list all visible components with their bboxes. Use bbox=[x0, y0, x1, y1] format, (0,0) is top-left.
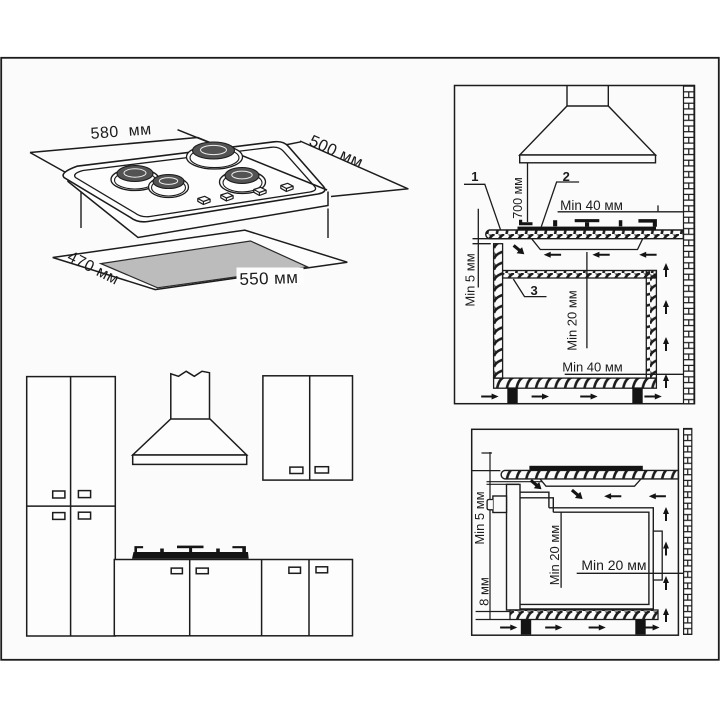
svg-text:1: 1 bbox=[471, 169, 478, 184]
svg-text:Min 40 мм: Min 40 мм bbox=[562, 359, 623, 374]
svg-text:Min 20 мм: Min 20 мм bbox=[565, 290, 580, 351]
svg-text:Min 20 мм: Min 20 мм bbox=[547, 525, 562, 586]
svg-text:Min 5 мм: Min 5 мм bbox=[472, 491, 487, 544]
svg-text:700 мм: 700 мм bbox=[511, 177, 525, 219]
svg-text:Min 20 мм: Min 20 мм bbox=[581, 557, 646, 573]
svg-text:Min 5 мм: Min 5 мм bbox=[463, 253, 478, 306]
svg-text:3: 3 bbox=[531, 283, 538, 298]
svg-text:8 мм: 8 мм bbox=[477, 577, 492, 606]
svg-text:550 мм: 550 мм bbox=[239, 268, 299, 289]
svg-text:Min 40 мм: Min 40 мм bbox=[560, 198, 623, 213]
